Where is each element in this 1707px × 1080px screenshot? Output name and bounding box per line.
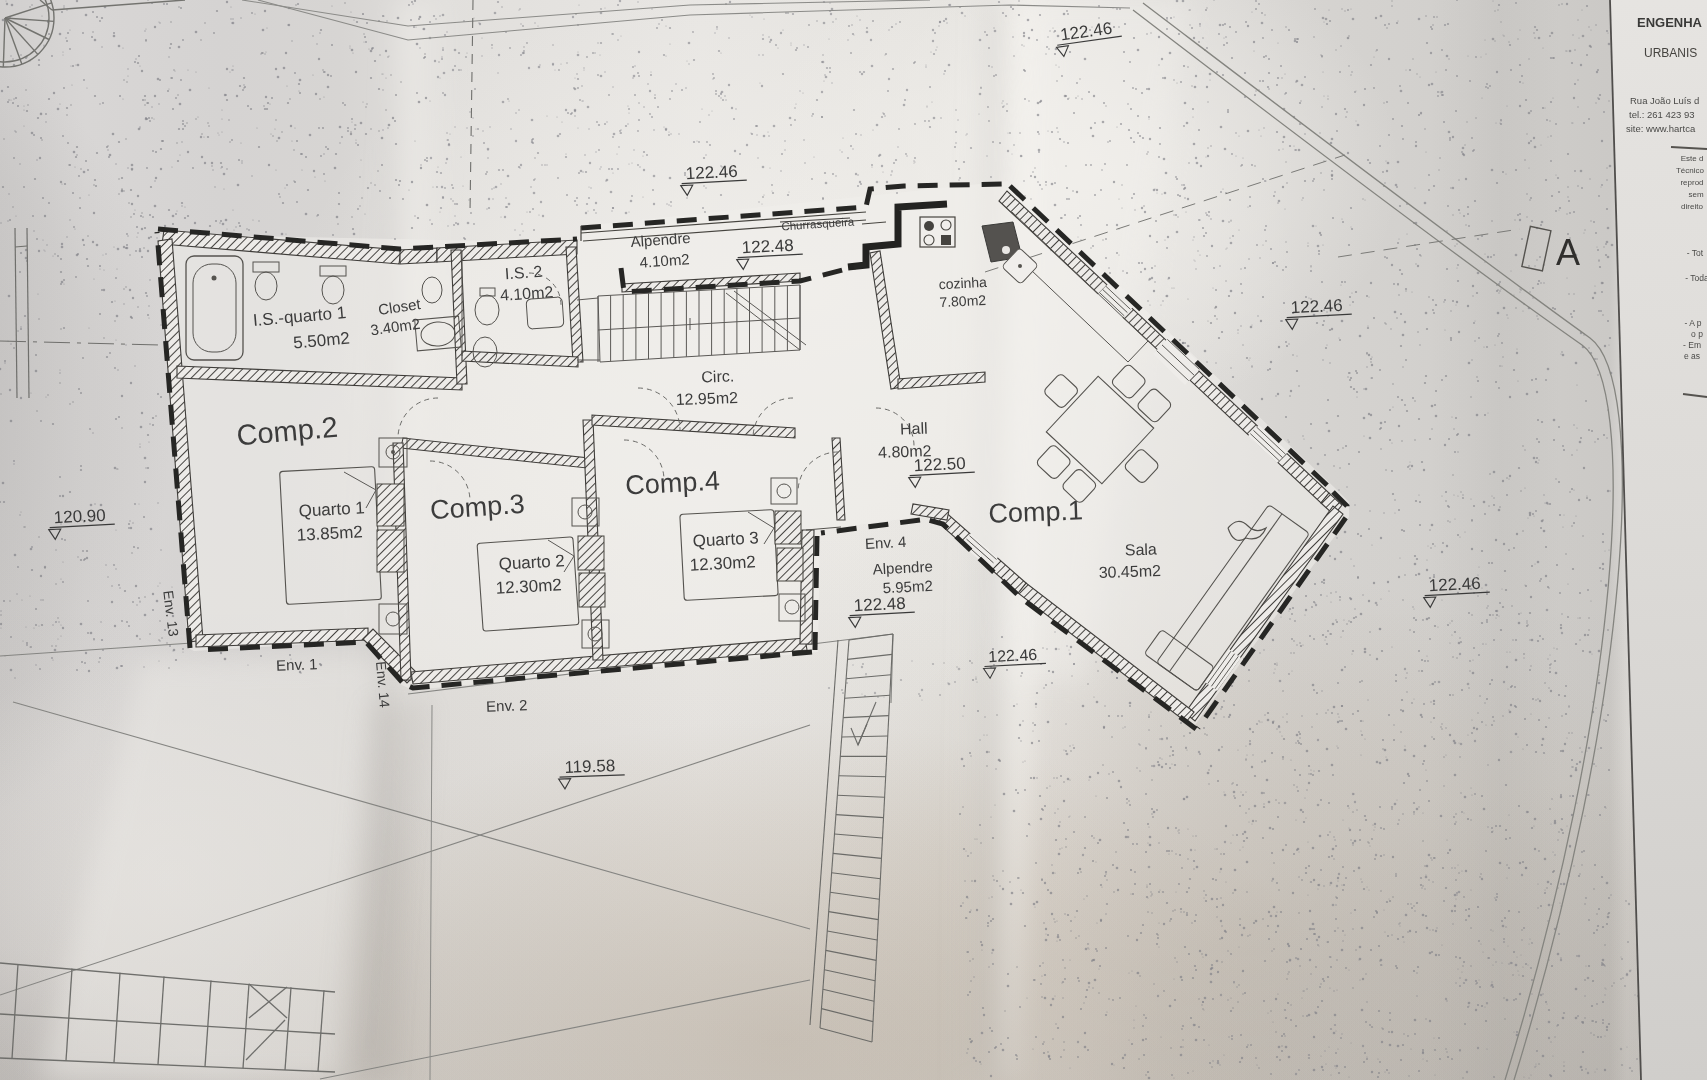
svg-text:Env. 2: Env. 2 (486, 696, 528, 714)
svg-text:30.45m2: 30.45m2 (1098, 562, 1161, 581)
svg-text:site: www.hartca: site: www.hartca (1626, 123, 1696, 134)
svg-text:- Tot: - Tot (1687, 248, 1704, 258)
svg-text:13.85m2: 13.85m2 (296, 522, 363, 544)
svg-text:Quarto 1: Quarto 1 (298, 498, 365, 520)
svg-text:direito: direito (1681, 202, 1703, 211)
svg-text:5.95m2: 5.95m2 (882, 577, 933, 597)
svg-text:122.46: 122.46 (988, 646, 1038, 666)
svg-text:122.50: 122.50 (913, 454, 966, 476)
svg-text:- A p: - A p (1684, 318, 1701, 328)
svg-text:- Toda: - Toda (1685, 273, 1707, 283)
svg-text:Sala: Sala (1125, 540, 1158, 558)
svg-text:122.46: 122.46 (685, 162, 738, 184)
svg-text:Env. 1: Env. 1 (276, 655, 318, 673)
svg-text:12.95m2: 12.95m2 (675, 389, 738, 408)
svg-text:12.30m2: 12.30m2 (495, 575, 562, 597)
svg-text:Rua João Luís d: Rua João Luís d (1630, 95, 1699, 106)
svg-text:Comp.4: Comp.4 (625, 466, 721, 501)
svg-text:120.90: 120.90 (53, 506, 106, 528)
svg-text:o p: o p (1691, 329, 1703, 339)
svg-text:119.58: 119.58 (564, 756, 615, 777)
svg-text:ENGENHA: ENGENHA (1637, 15, 1703, 30)
svg-text:- Em: - Em (1683, 340, 1701, 350)
svg-text:122.46: 122.46 (1290, 296, 1343, 318)
svg-text:Técnico: Técnico (1676, 166, 1705, 175)
svg-text:4.10m2: 4.10m2 (639, 250, 690, 270)
svg-text:reprod: reprod (1680, 178, 1703, 187)
svg-text:12.30m2: 12.30m2 (689, 552, 756, 574)
svg-text:Este d: Este d (1681, 154, 1704, 163)
svg-text:sem: sem (1688, 190, 1703, 199)
svg-text:tel.: 261 423 93: tel.: 261 423 93 (1629, 109, 1695, 120)
svg-text:Env. 4: Env. 4 (865, 533, 907, 552)
svg-text:122.48: 122.48 (741, 236, 794, 258)
svg-text:Comp.1: Comp.1 (988, 495, 1084, 528)
svg-text:122.48: 122.48 (853, 594, 906, 616)
svg-text:Circ.: Circ. (701, 367, 734, 385)
svg-text:A: A (1556, 232, 1580, 273)
svg-text:URBANIS: URBANIS (1644, 46, 1697, 60)
svg-text:cozinha: cozinha (938, 274, 987, 293)
svg-text:122.46: 122.46 (1428, 574, 1481, 596)
svg-text:Quarto 3: Quarto 3 (692, 528, 759, 550)
svg-text:e as: e as (1684, 351, 1700, 361)
svg-text:I.S. 2: I.S. 2 (504, 263, 543, 283)
svg-text:7.80m2: 7.80m2 (939, 292, 987, 310)
svg-text:Quarto 2: Quarto 2 (498, 551, 565, 573)
svg-text:Hall: Hall (900, 420, 928, 438)
svg-text:Alpendre: Alpendre (872, 557, 933, 577)
